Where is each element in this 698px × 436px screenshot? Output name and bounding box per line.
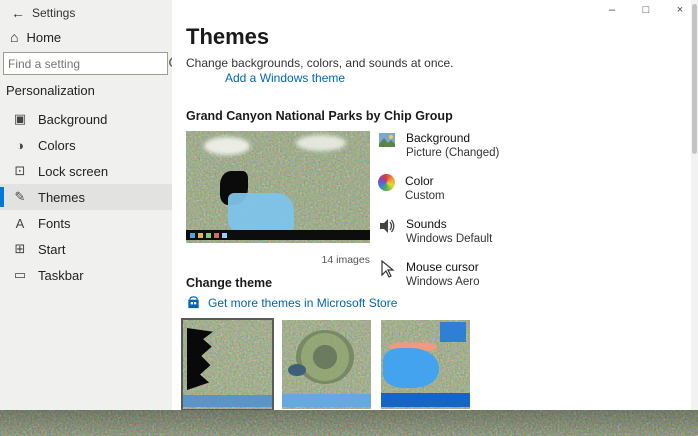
part-label: Background: [406, 131, 499, 146]
minimize-button[interactable]: –: [602, 2, 622, 18]
preview-lake-shape: [228, 193, 294, 231]
desktop-wallpaper-strip: [0, 410, 698, 436]
maximize-button[interactable]: □: [636, 2, 656, 18]
sidebar-item-start[interactable]: ⊞ Start: [0, 236, 172, 262]
desktop-shade: [0, 410, 698, 436]
themes-icon: ✎: [12, 189, 28, 205]
theme-parts: Background Picture (Changed) Color Custo…: [378, 131, 558, 303]
sidebar-item-background[interactable]: ▣ Background: [0, 106, 172, 132]
screen: ← Settings ⌂ Home Personalization ▣ Back…: [0, 0, 698, 436]
scrollbar-thumb[interactable]: [692, 4, 697, 154]
preview-sky-patch: [296, 135, 346, 151]
sidebar-item-taskbar[interactable]: ▭ Taskbar: [0, 262, 172, 288]
part-value: Windows Default: [406, 232, 492, 247]
sidebar-item-colors[interactable]: ◑ Colors: [0, 132, 172, 158]
sidebar-item-label: Fonts: [38, 216, 71, 231]
preview-caption: 14 images: [186, 254, 370, 266]
sidebar-item-fonts[interactable]: A Fonts: [0, 210, 172, 236]
sidebar-section-title: Personalization: [6, 83, 95, 98]
theme-tile-1[interactable]: [183, 320, 272, 409]
microsoft-store-icon: [186, 295, 201, 310]
search-box[interactable]: [3, 52, 168, 75]
lock-screen-icon: ⊡: [12, 163, 28, 179]
mini-taskbar-icon: [198, 233, 203, 238]
tile-taskbar: [282, 394, 371, 407]
change-theme-heading: Change theme: [186, 276, 272, 290]
background-setting-button[interactable]: Background Picture (Changed): [378, 131, 558, 161]
mouse-cursor-setting-button[interactable]: Mouse cursor Windows Aero: [378, 260, 558, 290]
sidebar-item-label: Colors: [38, 138, 76, 153]
tile-art: [440, 322, 466, 342]
tile-taskbar: [183, 395, 272, 407]
tile-art: [288, 364, 306, 376]
get-more-themes-link[interactable]: Get more themes in Microsoft Store: [186, 295, 397, 310]
part-value: Custom: [405, 189, 445, 204]
picture-icon: [378, 131, 396, 149]
mini-taskbar-icon: [190, 233, 195, 238]
part-label: Sounds: [406, 217, 492, 232]
current-theme-heading: Grand Canyon National Parks by Chip Grou…: [186, 109, 453, 123]
window-title: Settings: [32, 6, 75, 20]
tile-art: [383, 348, 439, 388]
sidebar-item-label: Start: [38, 242, 65, 257]
mini-taskbar-icon: [206, 233, 211, 238]
sounds-setting-button[interactable]: Sounds Windows Default: [378, 217, 558, 247]
sidebar: ← Settings ⌂ Home Personalization ▣ Back…: [0, 0, 173, 410]
part-label: Mouse cursor: [406, 260, 480, 275]
sidebar-item-label: Taskbar: [38, 268, 84, 283]
add-theme-link[interactable]: Add a Windows theme: [225, 71, 345, 85]
settings-window: ← Settings ⌂ Home Personalization ▣ Back…: [0, 0, 698, 410]
home-icon: ⌂: [10, 29, 18, 45]
theme-tile-2[interactable]: [282, 320, 371, 409]
home-label: Home: [26, 30, 61, 45]
colors-icon: ◑: [12, 138, 28, 153]
color-wheel-icon: [378, 174, 395, 191]
back-icon[interactable]: ←: [8, 4, 28, 22]
part-value: Windows Aero: [406, 275, 480, 290]
mini-taskbar-icon: [214, 233, 219, 238]
part-label: Color: [405, 174, 445, 189]
page-title: Themes: [186, 24, 269, 50]
preview-mini-taskbar: [186, 230, 370, 240]
sidebar-item-label: Lock screen: [38, 164, 108, 179]
tile-art: [296, 330, 354, 384]
scrollbar[interactable]: [691, 0, 698, 410]
sidebar-item-home[interactable]: ⌂ Home: [10, 29, 61, 45]
sidebar-nav: ▣ Background ◑ Colors ⊡ Lock screen ✎ Th…: [0, 106, 172, 288]
part-value: Picture (Changed): [406, 146, 499, 161]
mini-taskbar-icon: [222, 233, 227, 238]
fonts-icon: A: [12, 216, 28, 231]
sidebar-item-label: Themes: [38, 190, 85, 205]
taskbar-icon: ▭: [12, 267, 28, 283]
sidebar-item-label: Background: [38, 112, 107, 127]
close-button[interactable]: ×: [670, 2, 690, 18]
sidebar-item-themes[interactable]: ✎ Themes: [0, 184, 172, 210]
theme-preview-image: [186, 131, 370, 243]
theme-grid: [183, 320, 470, 409]
search-input[interactable]: [4, 57, 167, 71]
cursor-icon: [378, 260, 396, 278]
window-controls: – □ ×: [602, 2, 690, 18]
tile-taskbar: [381, 393, 470, 407]
page-intro: Change backgrounds, colors, and sounds a…: [186, 56, 454, 70]
store-link-label: Get more themes in Microsoft Store: [208, 296, 397, 310]
sidebar-item-lock-screen[interactable]: ⊡ Lock screen: [0, 158, 172, 184]
main-content: – □ × Themes Change backgrounds, colors,…: [172, 0, 698, 410]
background-icon: ▣: [12, 111, 28, 127]
color-setting-button[interactable]: Color Custom: [378, 174, 558, 204]
speaker-icon: [378, 217, 396, 235]
start-icon: ⊞: [12, 241, 28, 257]
theme-tile-3[interactable]: [381, 320, 470, 409]
preview-sky-patch: [204, 137, 250, 155]
